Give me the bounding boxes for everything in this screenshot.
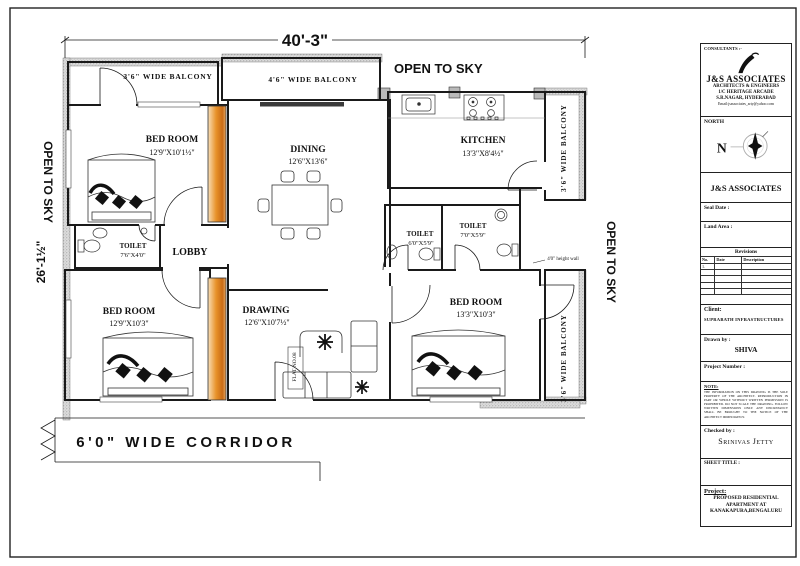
room-dim: 7'6"X4'0" bbox=[120, 252, 146, 259]
consultants-section: CONSULTANTS :- J&S ASSOCIATES ARCHITECTS… bbox=[701, 44, 791, 117]
room-label: BED ROOM bbox=[146, 135, 199, 145]
note-text: THE INFORMATION ON THIS DRAWING IS THE S… bbox=[704, 390, 788, 419]
bed-icon bbox=[412, 330, 505, 396]
compass-icon: N bbox=[704, 125, 790, 167]
firm-address-line: S.R.NAGAR, HYDERABAD bbox=[704, 96, 788, 102]
door-arc bbox=[392, 285, 430, 323]
wardrobe-strip bbox=[208, 106, 226, 222]
seal-date-label: Seal Date : bbox=[704, 205, 788, 211]
plant-icon bbox=[355, 380, 369, 394]
sheet-title-section: SHEET TITLE : bbox=[701, 459, 791, 486]
sheet-title-label: SHEET TITLE : bbox=[704, 461, 788, 466]
room-dim: 13'3"X10'3" bbox=[456, 310, 495, 319]
checked-by-section: Checked by : Srinivas Jetty bbox=[701, 426, 791, 459]
revisions-section: Revisions No. Date Description 1. bbox=[701, 248, 791, 305]
project-number-section: Project Number : bbox=[701, 362, 791, 382]
revisions-title: Revisions bbox=[701, 249, 791, 255]
project-line: KANAKAPURA,BENGALURU bbox=[704, 508, 788, 515]
room-label: TOILET bbox=[407, 230, 434, 238]
kitchen-sink-icon bbox=[388, 95, 545, 118]
room-label: TOILET bbox=[120, 242, 147, 250]
flat-number-label: FLAT NO.08 bbox=[292, 352, 298, 381]
floor-plan: 40'-3" 3'6" WIDE BALCONY 4'6" WIDE BALCO… bbox=[0, 0, 800, 566]
stove-icon bbox=[464, 95, 504, 120]
room-label: LOBBY bbox=[172, 247, 208, 258]
balcony-label: 3'6" WIDE BALCONY bbox=[560, 104, 568, 192]
firm-name: J&S ASSOCIATES bbox=[704, 74, 788, 84]
north-letter: N bbox=[717, 140, 727, 155]
open-to-sky-label: OPEN TO SKY bbox=[604, 221, 618, 303]
room-dim: 6'0"X5'9" bbox=[408, 240, 434, 247]
open-to-sky-label: OPEN TO SKY bbox=[394, 61, 483, 76]
door-arc bbox=[164, 187, 202, 225]
room-label: DRAWING bbox=[243, 306, 291, 316]
firm-name-section: J&S ASSOCIATES bbox=[701, 173, 791, 203]
note-label: NOTE: bbox=[704, 384, 788, 389]
balcony-label: 4'6" WIDE BALCONY bbox=[268, 75, 357, 84]
door-arc bbox=[455, 245, 480, 270]
north-section: NORTH N bbox=[701, 117, 791, 174]
room-dim: 12'6"X10'7½" bbox=[244, 318, 289, 327]
room-dim: 13'3"X8'4½" bbox=[462, 149, 503, 158]
bed-icon bbox=[88, 154, 155, 222]
dim-left-label: 26'-1½" bbox=[34, 241, 48, 284]
toilet-wc-icon bbox=[495, 209, 518, 256]
dim-top-label: 40'-3" bbox=[282, 31, 328, 50]
wall-hatch-layer bbox=[63, 54, 587, 420]
room-dim: 12'9"X10'3" bbox=[109, 319, 148, 328]
revisions-cell bbox=[715, 289, 742, 295]
seal-date-section: Seal Date : bbox=[701, 203, 791, 222]
sliding-door-icon bbox=[260, 102, 344, 107]
balcony-label: 3'6" WIDE BALCONY bbox=[560, 314, 568, 402]
note-section: NOTE: THE INFORMATION ON THIS DRAWING IS… bbox=[701, 382, 791, 427]
firm-logo-icon bbox=[704, 52, 788, 74]
balcony-label: 3'6" WIDE BALCONY bbox=[123, 72, 212, 81]
room-label: TOILET bbox=[460, 222, 487, 230]
revisions-table: No. Date Description 1. bbox=[701, 256, 791, 295]
door-arc bbox=[162, 270, 200, 308]
firm-subtitle: ARCHITECTS & ENGINEERS bbox=[704, 84, 788, 90]
consultants-label: CONSULTANTS :- bbox=[704, 46, 788, 51]
project-section: Project: PROPOSED RESIDENTIAL APARTMENT … bbox=[701, 486, 791, 526]
firm-name: J&S ASSOCIATES bbox=[711, 183, 782, 193]
checked-by-value: Srinivas Jetty bbox=[704, 437, 788, 446]
wardrobe-strip bbox=[208, 278, 226, 400]
drawn-by-label: Drawn by : bbox=[704, 337, 788, 343]
room-dim: 12'6"X13'6" bbox=[288, 157, 327, 166]
project-line: PROPOSED RESIDENTIAL bbox=[704, 495, 788, 502]
room-label: DINING bbox=[290, 145, 326, 155]
room-dim: 7'0"X5'9" bbox=[460, 232, 486, 239]
room-label: KITCHEN bbox=[461, 136, 506, 146]
checked-by-label: Checked by : bbox=[704, 428, 788, 434]
title-block: CONSULTANTS :- J&S ASSOCIATES ARCHITECTS… bbox=[700, 43, 792, 527]
client-label: Client: bbox=[704, 307, 788, 313]
land-area-section: Land Area : bbox=[701, 222, 791, 248]
project-label: Project: bbox=[704, 488, 788, 495]
dining-table-icon bbox=[258, 171, 342, 239]
bed-icon bbox=[103, 332, 193, 396]
plant-icon bbox=[317, 334, 333, 350]
client-section: Client: SUPRABATH INFRASTRUCTURES bbox=[701, 305, 791, 335]
toilet-wc-icon bbox=[387, 245, 440, 260]
wardrobe-strips bbox=[208, 106, 226, 400]
wall-height-note: 4'0" height wall bbox=[547, 257, 579, 262]
firm-email: Email:jsassociates_arty@yahoo.com bbox=[704, 102, 788, 106]
corridor-label: 6'0" WIDE CORRIDOR bbox=[76, 434, 296, 451]
room-label: BED ROOM bbox=[450, 298, 503, 308]
project-number-label: Project Number : bbox=[704, 364, 788, 370]
open-to-sky-label: OPEN TO SKY bbox=[41, 141, 55, 223]
revisions-cell bbox=[742, 289, 791, 295]
door-arc bbox=[508, 161, 537, 190]
drawing-sheet: 40'-3" 3'6" WIDE BALCONY 4'6" WIDE BALCO… bbox=[0, 0, 800, 566]
room-dim: 12'9"X10'1½" bbox=[149, 148, 194, 157]
room-label: BED ROOM bbox=[103, 307, 156, 317]
drawn-by-section: Drawn by : SHIVA bbox=[701, 335, 791, 362]
sheet-border bbox=[10, 8, 796, 557]
revisions-cell bbox=[701, 289, 715, 295]
client-name: SUPRABATH INFRASTRUCTURES bbox=[704, 317, 788, 322]
drawn-by-value: SHIVA bbox=[704, 345, 788, 354]
land-area-label: Land Area : bbox=[704, 224, 788, 230]
